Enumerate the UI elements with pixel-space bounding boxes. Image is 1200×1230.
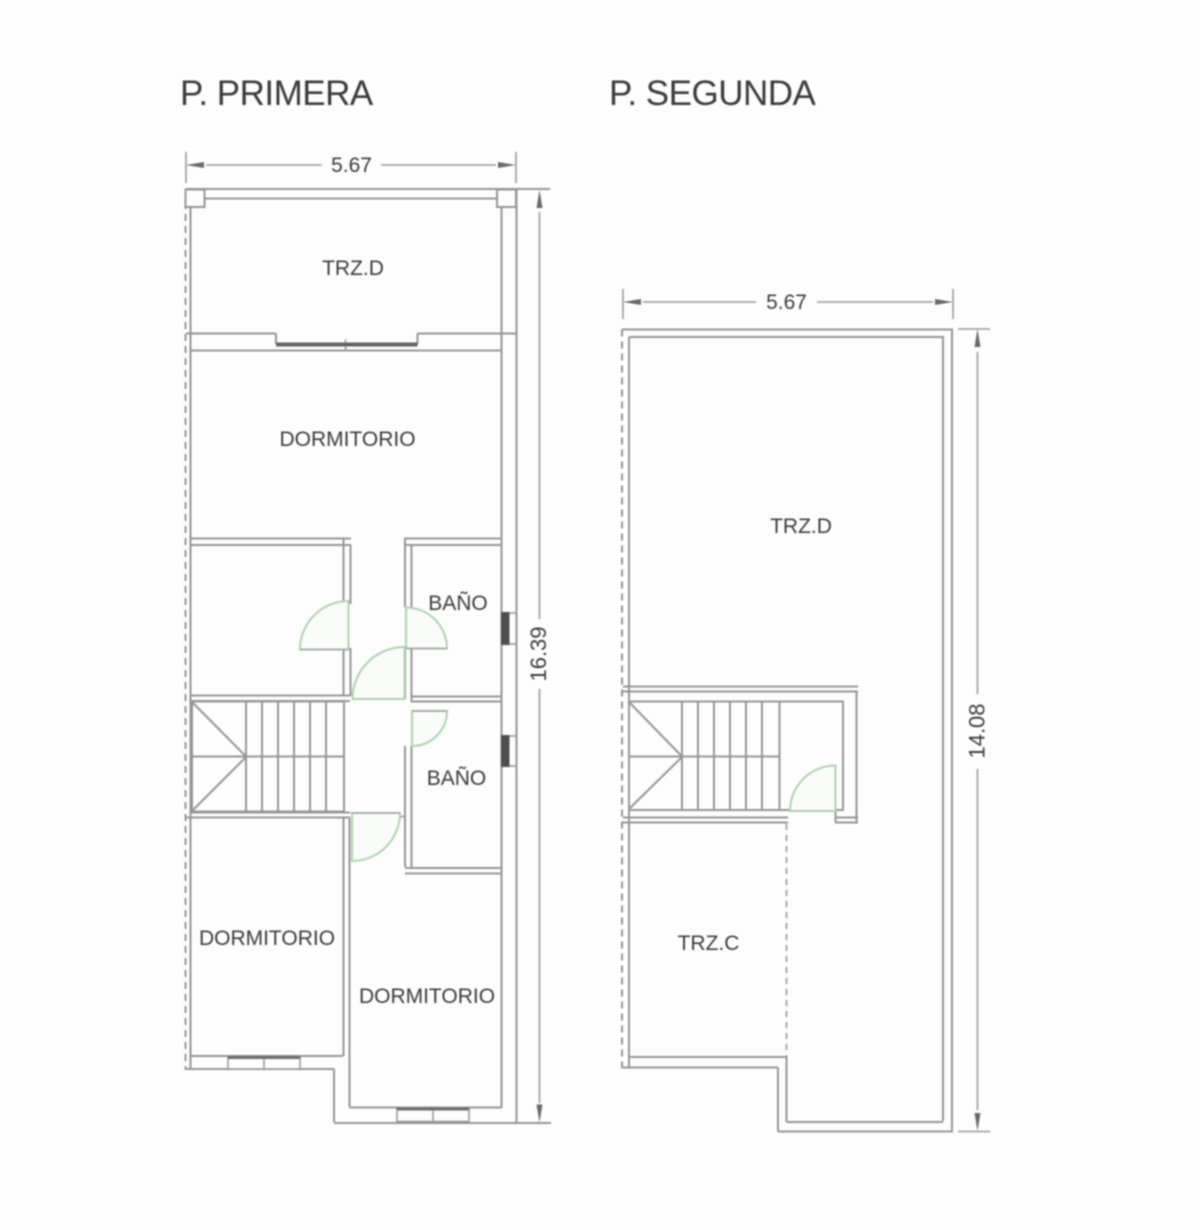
svg-text:5.67: 5.67 (766, 291, 807, 314)
svg-text:BAÑO: BAÑO (428, 591, 488, 615)
svg-text:14.08: 14.08 (965, 703, 990, 758)
svg-text:DORMITORIO: DORMITORIO (279, 428, 415, 451)
svg-text:BAÑO: BAÑO (427, 766, 487, 790)
svg-text:5.67: 5.67 (331, 154, 372, 177)
svg-text:TRZ.D: TRZ.D (322, 257, 384, 280)
svg-text:TRZ.D: TRZ.D (770, 515, 832, 538)
svg-text:P. SEGUNDA: P. SEGUNDA (609, 74, 817, 113)
svg-text:16.39: 16.39 (526, 626, 551, 681)
svg-text:P. PRIMERA: P. PRIMERA (180, 74, 374, 113)
svg-text:DORMITORIO: DORMITORIO (199, 927, 335, 950)
svg-text:TRZ.C: TRZ.C (678, 932, 740, 955)
svg-text:DORMITORIO: DORMITORIO (359, 985, 495, 1008)
